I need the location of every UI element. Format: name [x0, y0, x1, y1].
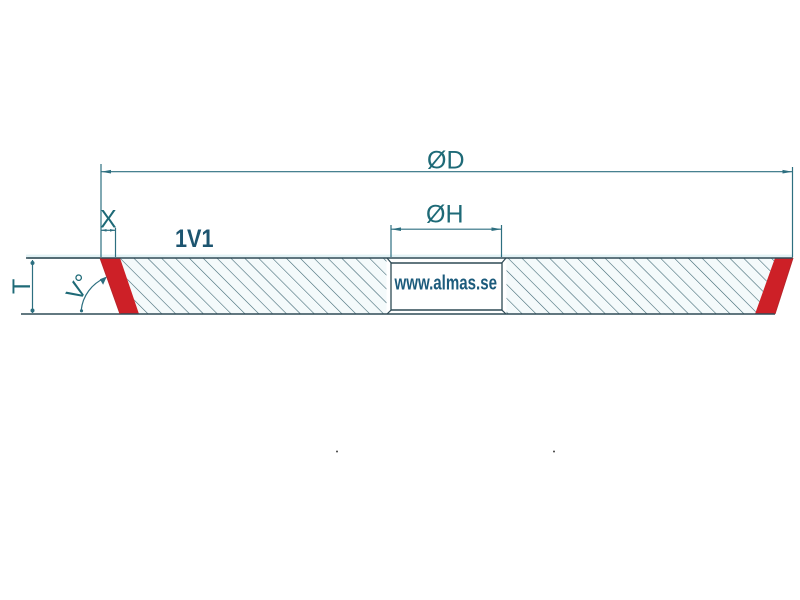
svg-text:X: X — [100, 206, 117, 234]
svg-text:ØD: ØD — [427, 147, 465, 175]
svg-text:www.almas.se: www.almas.se — [394, 272, 497, 295]
svg-text:ØH: ØH — [426, 201, 464, 229]
svg-text:1V1: 1V1 — [175, 225, 214, 253]
svg-text:T: T — [8, 279, 36, 294]
svg-text:V°: V° — [61, 270, 97, 306]
